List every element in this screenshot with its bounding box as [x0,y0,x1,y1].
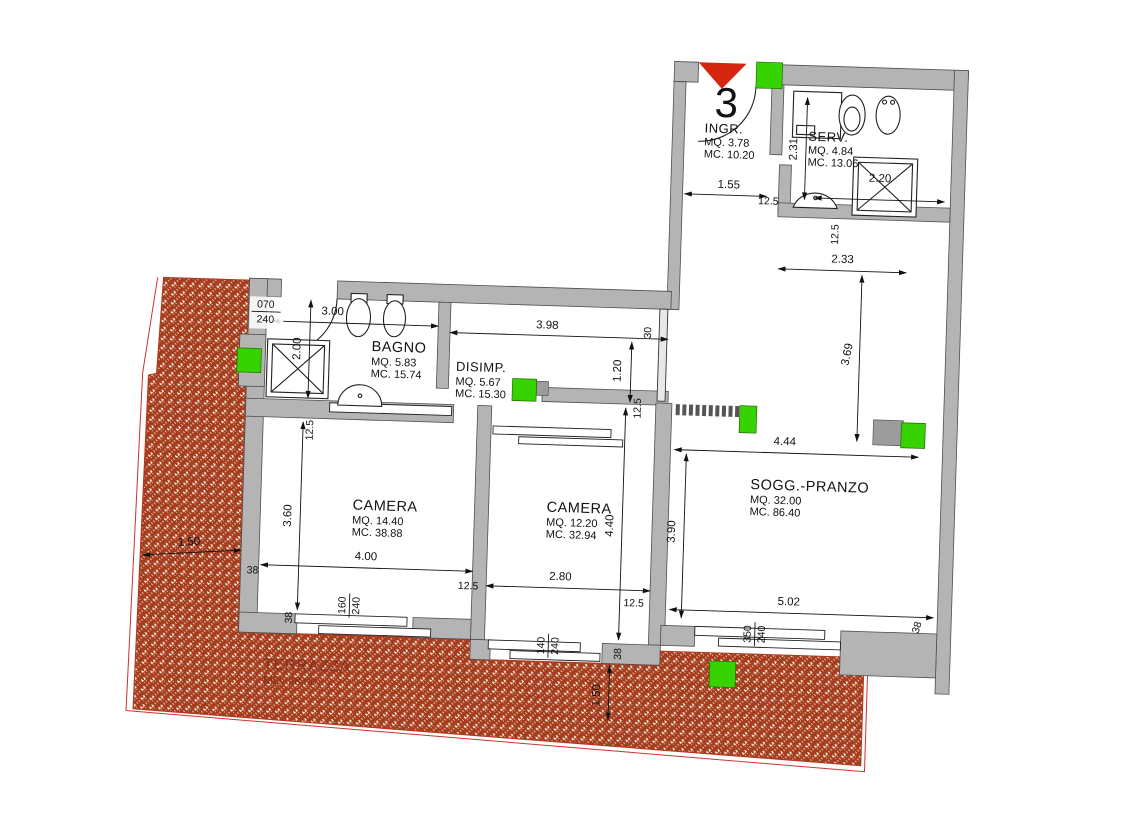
dim-sogg-window: 350 240 [741,622,768,647]
serv-name: SERV. [808,129,849,145]
dim-entry-door: 070 240 [249,296,284,329]
wall-sogg-bottom-left [660,625,695,646]
marker-bagno[interactable] [237,348,262,373]
dim-sogg-top: 4.44 [773,436,796,449]
wall-camera2-top [542,387,668,405]
disimp-mc: MC. 15.30 [455,388,506,402]
dim-line-passage-width [778,269,906,273]
terrace-area-value: MQ. 28.00 [263,675,317,689]
dim-line-corridor-length [450,333,668,340]
dim-camera1-window-h: 240 [350,597,363,615]
dim-bagno-width: 3.00 [321,305,344,318]
dim-ingr-width: 1.55 [717,179,740,192]
terrace-label: TERRAZZA [263,656,351,676]
unit-number: 3 [714,79,739,127]
dim-camera2-window: 140 240 [535,633,562,658]
dim-camera1-wall-bottom: 38 [283,611,295,623]
dim-corridor-wall: 30 [642,327,654,339]
dim-camera2-window-w: 140 [535,636,548,654]
dim-camera2-wall-right: 12.5 [623,597,644,610]
bagno-bidet [383,300,406,337]
dim-camera1-wall-right: 12.5 [458,580,479,593]
camera1-name: CAMERA [352,498,418,516]
dim-sogg-window-w: 350 [741,625,754,643]
dim-camera1-width: 4.00 [355,551,378,564]
wall-bagno-disimp [436,302,451,388]
dim-sogg-bottom: 5.02 [777,596,800,609]
dim-bagno-depth: 2.00 [291,337,304,360]
serv-sink [793,192,837,208]
bagno-name: BAGNO [371,339,426,357]
dim-camera2-depth: 4.40 [604,514,617,537]
dim-camera1-window-w: 160 [336,596,349,614]
marker-sogg-right[interactable] [901,423,926,449]
dim-entry-door-w: 070 [257,298,275,311]
terrace-bottom-dim: 1.50 [590,684,603,707]
dim-line-camera1-width [261,565,473,572]
wall-camera2-bottom-left [470,639,491,660]
dim-camera2-wall-top: 12.5 [631,398,644,419]
dim-line-camera1-depth [297,422,303,610]
wall-top-entrance-right [758,64,969,91]
dim-line-sogg-top [674,450,918,458]
dim-serv-width: 2.20 [869,173,892,186]
marker-terrace[interactable] [709,661,736,688]
dim-passage-width: 2.33 [831,253,854,266]
camera2-name: CAMERA [546,500,612,518]
dim-line-ingr-width [685,194,767,197]
bagno-mc: MC. 15.74 [371,368,422,382]
serv-bidet [876,96,901,135]
floorplan-page: TERRAZZA MQ. 28.00 1.50 1.50 [0,0,1147,834]
graybox-camera2 [536,381,548,395]
wall-top-entrance-left [674,61,699,82]
marker-camera2[interactable] [512,379,537,402]
dim-camera1-window: 160 240 [336,593,363,618]
wall-camera2-bottom-right [602,643,661,665]
dim-line-sogg-depth [681,454,686,618]
wall-right-outer [935,70,969,694]
dim-line-camera2-width [486,586,650,591]
ingr-mc: MC. 10.20 [704,148,755,162]
dim-sogg-wall-bottom: 38 [910,620,925,635]
wall-ingresso-left [667,81,686,309]
dim-passage-depth: 3.69 [839,342,855,366]
dim-sogg-window-h: 240 [755,625,768,643]
dim-sogg-depth: 3.90 [666,520,679,543]
dim-serv-depth: 2.31 [788,138,801,161]
dim-line-sogg-bottom [669,610,933,618]
dim-camera2-wall-bottom: 38 [612,648,624,660]
dim-corridor-width: 1.20 [612,359,625,382]
marker-sogg-left[interactable] [739,406,757,434]
terrace-left-dim: 1.50 [178,536,201,549]
dim-ingr-wall: 12.5 [758,195,779,208]
dim-line-passage-depth [857,275,862,441]
marker-entrance[interactable] [756,62,783,89]
dim-camera2-window-h: 240 [549,637,562,655]
bagno-sink [338,384,383,406]
fixtures [266,75,920,423]
sogg-mc: MC. 86.40 [749,506,800,520]
dim-entry-door-h: 240 [256,313,274,326]
bagno-toilet [346,298,371,337]
ingr-name: INGR. [704,120,743,136]
wall-camera-divider [470,405,491,639]
dim-bagno-wall: 12.5 [304,420,317,441]
dim-camera2-width: 2.80 [549,571,572,584]
wall-thin-disimp-sogg [657,309,668,401]
camera1-window-sill-1 [295,614,407,627]
dim-corridor-length: 3.98 [536,319,559,332]
disimp-cabinet-bar-1 [493,426,611,438]
sogg-window-sill-2 [718,638,840,650]
dim-camera1-depth: 3.60 [282,504,295,527]
disimp-cabinet-bar-2 [519,437,623,447]
camera2-mc: MC. 32.94 [546,529,597,543]
wall-ingr-serv-divider [770,85,784,155]
camera1-mc: MC. 38.88 [352,527,403,541]
serv-mc: MC. 13.06 [807,157,858,171]
disimp-name: DISIMP. [456,359,507,376]
graybox-sogg-right [873,420,904,446]
room-labels: 3 INGR. MQ. 3.78 MC. 10.20 SERV. MQ. 4.8… [352,68,882,555]
wall-bottom-right-corner [840,631,937,678]
radiator-strip [676,410,742,412]
dim-serv-wall: 12.5 [829,224,842,245]
dim-camera1-wall-left: 38 [246,564,258,576]
floorplan-drawing: TERRAZZA MQ. 28.00 1.50 1.50 [0,0,1147,834]
